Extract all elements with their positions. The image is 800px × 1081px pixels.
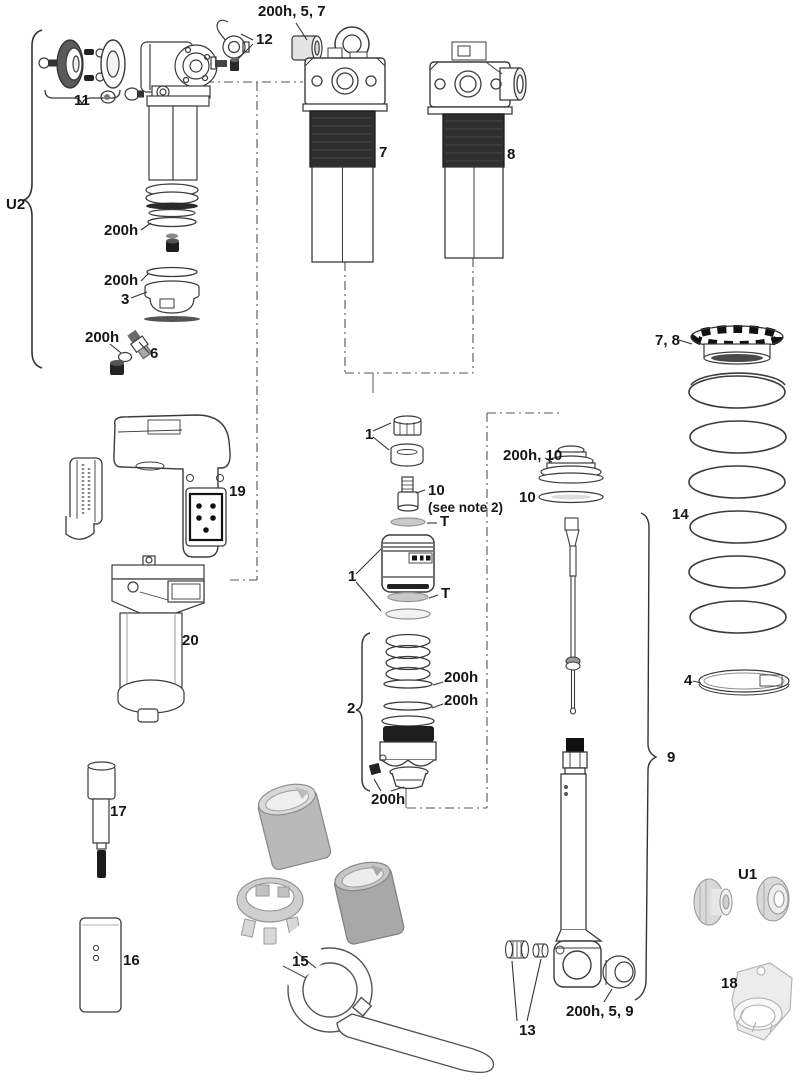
callout-3: 3 — [121, 292, 129, 307]
callout-200h-5-9: 200h, 5, 9 — [566, 1004, 634, 1019]
callout-9: 9 — [667, 750, 675, 765]
eyelet-bushing-200h-5-9 — [603, 956, 635, 988]
u2-brace — [24, 30, 42, 368]
callout-7-8: 7, 8 — [655, 333, 680, 348]
callout-6: 6 — [150, 346, 158, 361]
callout-1-lower: 1 — [348, 569, 356, 584]
callout-11: 11 — [74, 93, 90, 108]
part-11-mount-hardware — [39, 40, 144, 105]
bottom-cap — [390, 767, 428, 789]
t-seal-upper — [391, 518, 425, 526]
u1-mounting-nuts — [694, 877, 789, 925]
callout-2: 2 — [347, 701, 355, 716]
battery-cover — [66, 458, 102, 539]
part-4-spring-seat — [699, 670, 789, 695]
callout-t-lower: T — [441, 586, 450, 601]
part-2-brace — [356, 633, 370, 791]
callout-17: 17 — [110, 804, 127, 819]
callout-4: 4 — [684, 673, 692, 688]
callout-19: 19 — [229, 484, 246, 499]
part-18-cap — [732, 963, 792, 1040]
part-1-valve-stack — [382, 416, 434, 619]
part-1-air-can — [382, 535, 434, 592]
callout-7: 7 — [379, 145, 387, 160]
part-16-block — [80, 918, 121, 1012]
diagram-artwork — [0, 0, 800, 1081]
socket-3 — [331, 857, 405, 945]
callout-200h-b: 200h — [104, 273, 138, 288]
callout-200h-e: 200h — [444, 693, 478, 708]
part-13-hardware — [506, 941, 549, 958]
callout-200h-c: 200h — [85, 330, 119, 345]
callout-8: 8 — [507, 147, 515, 162]
callout-13: 13 — [519, 1023, 536, 1038]
part-14-coil-spring — [689, 373, 786, 633]
callout-200h-5-7: 200h, 5, 7 — [258, 4, 326, 19]
part-9-brace — [635, 513, 656, 1000]
seal-ring-200h-b — [147, 268, 197, 277]
callout-14: 14 — [672, 507, 689, 522]
negative-spring — [386, 635, 430, 681]
spanner-wrench — [264, 924, 494, 1073]
callout-t-upper: T — [440, 514, 449, 529]
callout-1-upper: 1 — [365, 427, 373, 442]
exploded-diagram-canvas: U2 11 12 200h, 5, 7 7 8 200h 200h 3 200h… — [0, 0, 800, 1081]
part-3-piston — [145, 281, 199, 313]
part-19-remote — [66, 415, 230, 557]
callout-u1: U1 — [738, 867, 757, 882]
air-piston — [380, 716, 436, 766]
part-10-air-valve — [398, 477, 418, 511]
u2-damper-unit — [141, 42, 227, 180]
part-9-damper-body — [554, 738, 601, 987]
seal-ring-200h-d — [384, 680, 432, 688]
part-7-shock — [303, 27, 387, 262]
socket-1 — [254, 779, 332, 871]
callout-15: 15 — [292, 954, 309, 969]
callout-12: 12 — [256, 32, 273, 47]
callout-10-valve: 10 — [428, 483, 445, 498]
callout-200h-a: 200h — [104, 223, 138, 238]
callout-18: 18 — [721, 976, 738, 991]
seal-ring-200h-e — [384, 702, 432, 710]
part-15-tools — [237, 779, 494, 1073]
seal-ring-200h-a — [148, 218, 196, 227]
callout-u2: U2 — [6, 197, 25, 212]
callout-200h-f: 200h — [371, 792, 405, 807]
part-2-group — [356, 633, 436, 791]
callout-200h-d: 200h — [444, 670, 478, 685]
callout-10-disc: 10 — [519, 490, 536, 505]
damper-shaft — [565, 518, 580, 714]
callout-16: 16 — [123, 953, 140, 968]
callout-20: 20 — [182, 633, 199, 648]
callout-200h-10: 200h, 10 — [503, 448, 562, 463]
t-seal-lower — [388, 593, 428, 602]
part-7-8-top-cap — [691, 326, 783, 364]
part-17-valve-tool — [88, 762, 115, 878]
